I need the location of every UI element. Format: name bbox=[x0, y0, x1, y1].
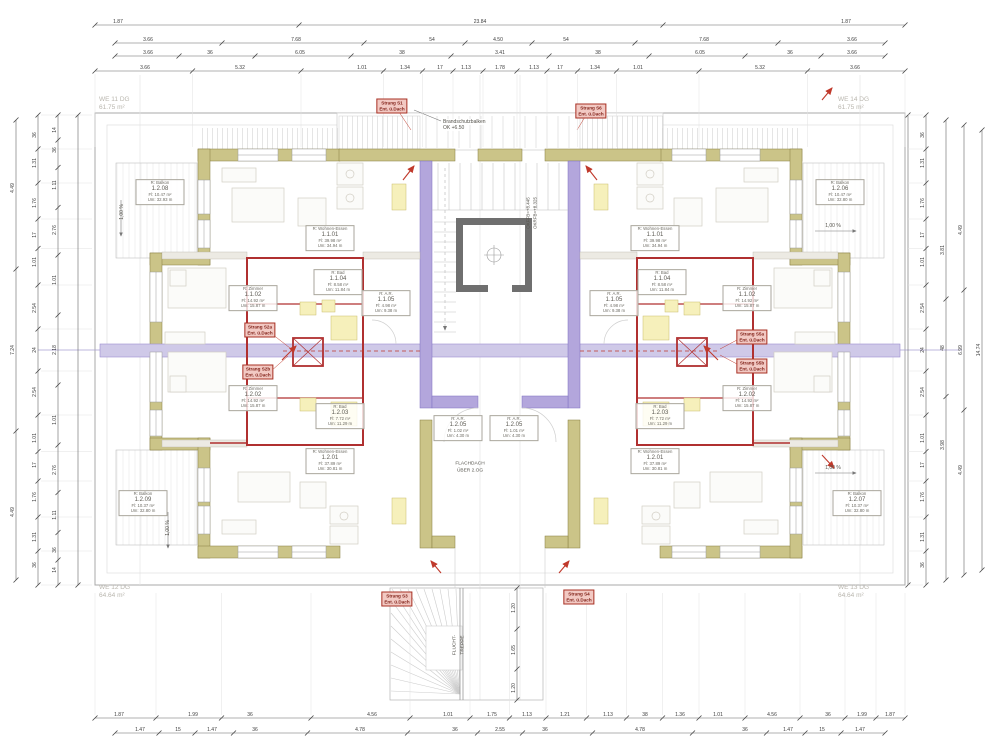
dimension-label: 4.78 bbox=[635, 727, 645, 733]
dimension-label: 3.66 bbox=[850, 65, 860, 71]
dimension-label: 3.66 bbox=[140, 65, 150, 71]
dimension-label: 1.31 bbox=[920, 158, 926, 168]
dimension-label: 1.01 bbox=[443, 712, 453, 718]
dimension-label: 36 bbox=[825, 712, 831, 718]
dimension-label: 36 bbox=[742, 727, 748, 733]
dimension-label: 6.05 bbox=[695, 50, 705, 56]
dimension-label: 2.55 bbox=[495, 727, 505, 733]
dimension-label: 7.68 bbox=[699, 37, 709, 43]
dimension-label: 1.01 bbox=[52, 415, 58, 425]
dimension-label: 1.13 bbox=[529, 65, 539, 71]
dimension-label: 1.01 bbox=[32, 257, 38, 267]
dimension-label: 3.98 bbox=[940, 440, 946, 450]
dimension-label: 1.76 bbox=[920, 492, 926, 502]
dimension-label: 1.31 bbox=[32, 532, 38, 542]
dimension-label: 24 bbox=[32, 347, 38, 353]
dimension-label: 4.49 bbox=[10, 183, 16, 193]
dimension-label: 1.01 bbox=[633, 65, 643, 71]
dimension-label: 1.78 bbox=[495, 65, 505, 71]
dimension-label: 1.13 bbox=[461, 65, 471, 71]
dimension-label: 1.01 bbox=[920, 257, 926, 267]
dimension-label: 36 bbox=[32, 562, 38, 568]
dimension-label: 2.54 bbox=[32, 303, 38, 313]
dimension-label: 36 bbox=[920, 562, 926, 568]
dimension-label: 1.13 bbox=[522, 712, 532, 718]
dimension-label: 2.76 bbox=[52, 225, 58, 235]
dimension-label: 2.54 bbox=[920, 303, 926, 313]
dimension-label: 38 bbox=[399, 50, 405, 56]
dimension-label: 17 bbox=[557, 65, 563, 71]
dimension-label: 1.76 bbox=[32, 198, 38, 208]
dimension-label: 1.76 bbox=[920, 198, 926, 208]
dimension-label: 1.20 bbox=[511, 683, 517, 693]
dimension-label: 1.20 bbox=[511, 603, 517, 613]
dimension-label: 1.87 bbox=[885, 712, 895, 718]
dimension-label: 1.99 bbox=[188, 712, 198, 718]
dimension-label: 36 bbox=[920, 132, 926, 138]
dimension-label: 2.76 bbox=[52, 465, 58, 475]
dimension-label: 14.74 bbox=[976, 344, 982, 357]
dimension-label: 1.13 bbox=[603, 712, 613, 718]
dimension-label: 36 bbox=[52, 147, 58, 153]
dimension-label: 1.47 bbox=[135, 727, 145, 733]
dimension-label: 5.32 bbox=[755, 65, 765, 71]
dimension-label: 2.54 bbox=[32, 387, 38, 397]
dimension-label: 4.49 bbox=[958, 225, 964, 235]
dimension-label: 1.01 bbox=[32, 433, 38, 443]
dimension-label: 36 bbox=[787, 50, 793, 56]
dimension-label: 2.18 bbox=[52, 345, 58, 355]
dimension-label: 38 bbox=[595, 50, 601, 56]
dimension-label: 4.78 bbox=[355, 727, 365, 733]
dimension-label: 7.24 bbox=[10, 345, 16, 355]
dimension-label: 15 bbox=[175, 727, 181, 733]
dimension-label: 1.34 bbox=[400, 65, 410, 71]
dimension-label: 1.87 bbox=[113, 19, 123, 25]
dimension-label: 36 bbox=[52, 547, 58, 553]
dimension-label: 36 bbox=[252, 727, 258, 733]
dimension-label: 3.66 bbox=[847, 37, 857, 43]
dimension-label: 15 bbox=[819, 727, 825, 733]
dimension-label: 1.65 bbox=[511, 645, 517, 655]
dimension-label: 4.56 bbox=[367, 712, 377, 718]
dimension-label: 1.75 bbox=[487, 712, 497, 718]
dimension-label: 36 bbox=[32, 132, 38, 138]
dimension-label: 4.56 bbox=[767, 712, 777, 718]
dimension-label: 24 bbox=[920, 347, 926, 353]
dimension-label: 14 bbox=[52, 127, 58, 133]
dimension-label: 1.47 bbox=[783, 727, 793, 733]
dimension-label: 1.31 bbox=[32, 158, 38, 168]
dimension-label: 3.66 bbox=[143, 50, 153, 56]
dimension-label: 6.05 bbox=[295, 50, 305, 56]
dimension-label: 7.68 bbox=[291, 37, 301, 43]
dimension-label: 17 bbox=[437, 65, 443, 71]
floor-plan-canvas: 1.8723.841.873.667.68544.50547.683.663.6… bbox=[0, 0, 1000, 737]
dimension-label: 1.01 bbox=[52, 275, 58, 285]
dimension-label: 4.49 bbox=[10, 507, 16, 517]
dimension-label: 4.49 bbox=[958, 465, 964, 475]
dimension-label: 17 bbox=[32, 232, 38, 238]
dimension-label: 1.31 bbox=[920, 532, 926, 542]
dimension-label: 54 bbox=[429, 37, 435, 43]
dimension-label: 3.66 bbox=[847, 50, 857, 56]
dimension-label: 3.41 bbox=[495, 50, 505, 56]
dimension-label: 17 bbox=[920, 462, 926, 468]
dimension-label: 17 bbox=[32, 462, 38, 468]
dimension-label: 14 bbox=[52, 567, 58, 573]
dimension-label: 1.87 bbox=[114, 712, 124, 718]
dimension-label: 1.34 bbox=[590, 65, 600, 71]
dimension-label: 1.47 bbox=[207, 727, 217, 733]
dimension-label: 1.01 bbox=[920, 433, 926, 443]
dimension-label: 1.11 bbox=[52, 510, 58, 520]
dimension-label: 3.81 bbox=[940, 245, 946, 255]
dimension-label: 2.54 bbox=[920, 387, 926, 397]
dimension-label: 54 bbox=[563, 37, 569, 43]
floor-plan-drawing: 1.8723.841.873.667.68544.50547.683.663.6… bbox=[0, 0, 1000, 737]
dimension-label: 1.87 bbox=[841, 19, 851, 25]
dimension-label: 6.99 bbox=[958, 345, 964, 355]
dimension-label: 1.01 bbox=[357, 65, 367, 71]
dimension-label: 3.66 bbox=[143, 37, 153, 43]
dimension-label: 1.47 bbox=[855, 727, 865, 733]
dimension-label: 38 bbox=[642, 712, 648, 718]
dimension-label: 1.99 bbox=[857, 712, 867, 718]
dimension-label: 36 bbox=[542, 727, 548, 733]
dimension-label: 1.01 bbox=[713, 712, 723, 718]
dimension-label: 4.50 bbox=[493, 37, 503, 43]
dimension-label: 1.76 bbox=[32, 492, 38, 502]
dimension-label: 1.36 bbox=[675, 712, 685, 718]
dimension-label: 36 bbox=[207, 50, 213, 56]
dimension-label: 48 bbox=[940, 345, 946, 351]
dimension-label: 36 bbox=[247, 712, 253, 718]
dimension-label: 5.32 bbox=[235, 65, 245, 71]
dimension-label: 1.11 bbox=[52, 180, 58, 190]
dimension-label: 36 bbox=[452, 727, 458, 733]
dimension-label: 23.84 bbox=[474, 19, 487, 25]
dimension-label: 1.21 bbox=[560, 712, 570, 718]
dimension-label: 17 bbox=[920, 232, 926, 238]
